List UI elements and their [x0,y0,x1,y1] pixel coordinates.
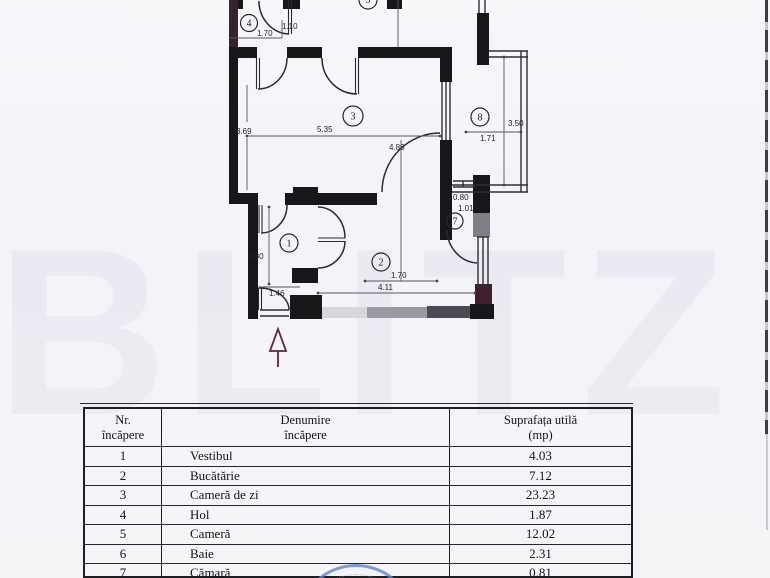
table-row: 3 Cameră de zi 23.23 [85,485,631,505]
dim-0-80: 0.80 [453,193,469,202]
dim-1-10: 1.10 [282,22,298,31]
table-row: 2 Bucătărie 7.12 [85,466,631,486]
dim-1-71: 1.71 [480,134,496,143]
scan-edge-artifact [765,0,768,434]
dim-4-86: 4.86 [389,143,405,152]
dim-1-70-r2: 1.70 [391,271,407,280]
dim-5-35: 5.35 [317,125,333,134]
floor-plan: 3.69 5.35 4.86 1.10 1.70 2.80 1.46 1.70 … [225,0,535,380]
scan-edge-artifact-faint [766,434,768,530]
dim-1-01: 1.01 [458,204,474,213]
entrance-arrow [270,329,286,367]
table-top-scan-line [80,403,633,404]
area-table: Nr. încăpere Denumire încăpere Suprafața… [83,407,633,578]
room-3-number: 3 [351,112,356,123]
room-1-number: 1 [287,239,292,250]
table-header-row: Nr. încăpere Denumire încăpere Suprafața… [85,409,631,446]
table-row: 6 Baie 2.31 [85,544,631,564]
room-5-number: 5 [366,0,371,6]
table-row: 4 Hol 1.87 [85,505,631,525]
dim-1-70-r4: 1.70 [257,29,273,38]
dim-4-11: 4.11 [378,283,394,292]
room-2-number: 2 [379,258,384,269]
table-row: 5 Cameră 12.02 [85,524,631,544]
dim-1-46: 1.46 [269,289,285,298]
stamp-inner-ring [307,574,405,578]
dim-2-80: 2.80 [248,252,264,261]
room-7-number: 7 [453,217,458,228]
room-8-number: 8 [478,113,483,124]
dim-3-69: 3.69 [236,127,252,136]
table-row: 1 Vestibul 4.03 [85,446,631,466]
dim-3-50: 3.50 [508,119,524,128]
header-nr: Nr. încăpere [85,409,162,446]
room-4-number: 4 [247,19,252,30]
header-suprafata: Suprafața utilă (mp) [450,409,631,446]
scanned-floorplan-page: BLITZ [0,0,770,578]
header-denumire: Denumire încăpere [162,409,450,446]
